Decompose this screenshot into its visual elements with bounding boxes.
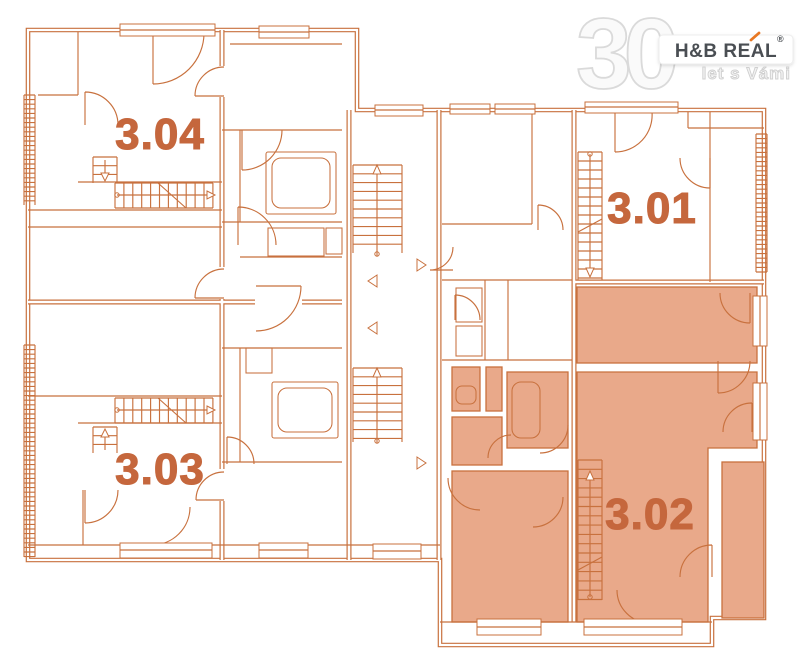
unit-label-3.02: 3.02 bbox=[605, 490, 695, 539]
logo-tagline: let s Vámi bbox=[702, 64, 791, 83]
logo: 30 H&B REAL ® let s Vámi bbox=[576, 0, 793, 110]
floorplan-svg: 3.043.013.033.02 30 H&B REAL ® let s Vám… bbox=[0, 0, 800, 670]
logo-brand-text: H&B REAL bbox=[675, 41, 777, 62]
floorplan-canvas: 3.043.013.033.02 30 H&B REAL ® let s Vám… bbox=[0, 0, 800, 670]
logo-registered-mark: ® bbox=[777, 34, 784, 44]
unit-label-3.03: 3.03 bbox=[115, 445, 205, 494]
unit-label-3.04: 3.04 bbox=[115, 110, 205, 159]
unit-label-3.01: 3.01 bbox=[607, 184, 697, 233]
